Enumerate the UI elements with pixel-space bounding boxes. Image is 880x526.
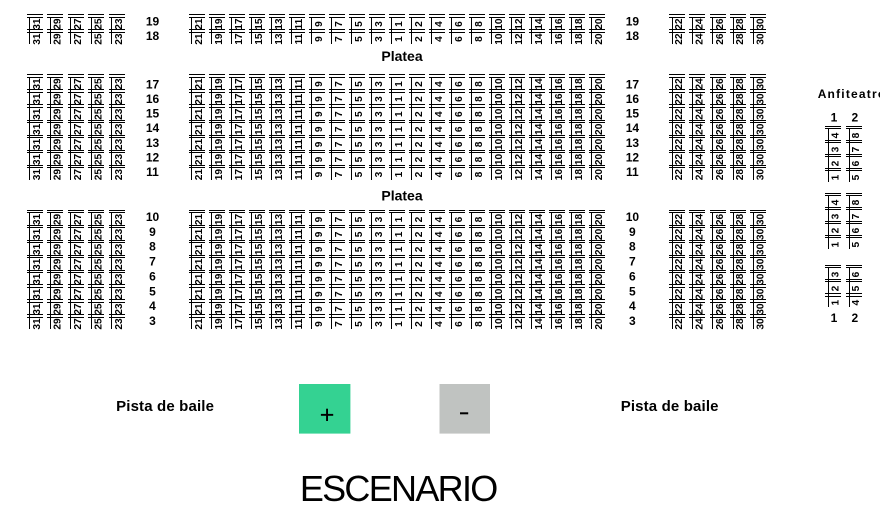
svg-text:6: 6 bbox=[454, 306, 465, 312]
svg-text:4: 4 bbox=[434, 246, 445, 252]
svg-text:23: 23 bbox=[114, 18, 125, 30]
svg-text:27: 27 bbox=[73, 243, 84, 255]
svg-text:6: 6 bbox=[629, 270, 636, 284]
svg-text:2: 2 bbox=[414, 216, 425, 222]
svg-text:18: 18 bbox=[146, 29, 160, 43]
svg-text:4: 4 bbox=[434, 171, 445, 177]
svg-text:18: 18 bbox=[626, 29, 640, 43]
svg-text:Anfiteatro: Anfiteatro bbox=[818, 87, 880, 101]
svg-text:21: 21 bbox=[194, 258, 205, 270]
svg-text:4: 4 bbox=[434, 276, 445, 282]
svg-text:11: 11 bbox=[294, 273, 305, 284]
svg-text:13: 13 bbox=[274, 93, 285, 105]
svg-text:2: 2 bbox=[414, 21, 425, 27]
svg-text:27: 27 bbox=[73, 214, 84, 226]
svg-text:13: 13 bbox=[274, 123, 285, 135]
svg-text:2: 2 bbox=[414, 36, 425, 42]
svg-text:20: 20 bbox=[594, 169, 605, 181]
svg-text:26: 26 bbox=[715, 214, 726, 226]
svg-text:12: 12 bbox=[514, 154, 525, 166]
svg-text:29: 29 bbox=[53, 123, 64, 135]
svg-text:3: 3 bbox=[374, 96, 385, 102]
svg-text:1: 1 bbox=[831, 311, 838, 325]
svg-text:10: 10 bbox=[494, 138, 505, 150]
svg-text:8: 8 bbox=[851, 132, 862, 138]
svg-text:15: 15 bbox=[254, 33, 265, 45]
svg-text:11: 11 bbox=[294, 229, 305, 240]
svg-text:16: 16 bbox=[554, 78, 565, 90]
svg-text:6: 6 bbox=[454, 216, 465, 222]
svg-text:19: 19 bbox=[214, 123, 225, 135]
svg-text:2: 2 bbox=[851, 110, 858, 124]
svg-text:20: 20 bbox=[594, 108, 605, 120]
svg-text:21: 21 bbox=[194, 303, 205, 315]
svg-text:15: 15 bbox=[254, 123, 265, 135]
svg-text:3: 3 bbox=[149, 314, 156, 328]
svg-text:1: 1 bbox=[394, 156, 405, 162]
svg-text:13: 13 bbox=[274, 169, 285, 181]
svg-text:19: 19 bbox=[214, 93, 225, 105]
svg-text:7: 7 bbox=[149, 255, 156, 269]
svg-text:4: 4 bbox=[434, 36, 445, 42]
svg-text:14: 14 bbox=[534, 93, 545, 105]
svg-text:9: 9 bbox=[314, 126, 325, 132]
svg-text:24: 24 bbox=[695, 303, 706, 315]
svg-text:30: 30 bbox=[756, 318, 767, 330]
svg-text:30: 30 bbox=[756, 138, 767, 150]
svg-text:26: 26 bbox=[715, 288, 726, 300]
svg-text:11: 11 bbox=[146, 165, 159, 179]
svg-text:31: 31 bbox=[32, 18, 43, 30]
svg-text:3: 3 bbox=[830, 213, 841, 219]
svg-text:18: 18 bbox=[574, 123, 585, 135]
svg-text:7: 7 bbox=[851, 213, 862, 219]
svg-text:19: 19 bbox=[214, 214, 225, 226]
svg-text:12: 12 bbox=[514, 108, 525, 120]
svg-text:1: 1 bbox=[394, 216, 405, 222]
svg-text:29: 29 bbox=[53, 18, 64, 30]
svg-text:22: 22 bbox=[674, 123, 685, 135]
svg-text:17: 17 bbox=[626, 78, 640, 92]
svg-text:21: 21 bbox=[194, 214, 205, 226]
svg-text:5: 5 bbox=[354, 21, 365, 27]
svg-text:14: 14 bbox=[534, 123, 545, 135]
svg-text:3: 3 bbox=[830, 271, 841, 277]
svg-text:14: 14 bbox=[534, 214, 545, 226]
svg-text:12: 12 bbox=[514, 258, 525, 270]
svg-text:28: 28 bbox=[735, 18, 746, 30]
svg-text:13: 13 bbox=[626, 136, 640, 150]
svg-text:2: 2 bbox=[414, 291, 425, 297]
svg-text:1: 1 bbox=[394, 246, 405, 252]
svg-text:Pista de baile: Pista de baile bbox=[621, 398, 719, 415]
svg-text:14: 14 bbox=[534, 288, 545, 300]
svg-text:2: 2 bbox=[414, 126, 425, 132]
svg-text:15: 15 bbox=[626, 107, 640, 121]
svg-text:16: 16 bbox=[554, 258, 565, 270]
svg-text:11: 11 bbox=[294, 288, 305, 299]
svg-text:16: 16 bbox=[554, 318, 565, 330]
svg-text:29: 29 bbox=[53, 303, 64, 315]
svg-text:28: 28 bbox=[735, 214, 746, 226]
svg-text:13: 13 bbox=[274, 258, 285, 270]
svg-text:5: 5 bbox=[354, 141, 365, 147]
svg-text:31: 31 bbox=[32, 214, 43, 226]
svg-text:2: 2 bbox=[830, 160, 841, 166]
svg-text:8: 8 bbox=[474, 81, 485, 87]
svg-text:19: 19 bbox=[214, 108, 225, 120]
svg-text:6: 6 bbox=[454, 126, 465, 132]
svg-text:1: 1 bbox=[394, 126, 405, 132]
svg-text:18: 18 bbox=[574, 108, 585, 120]
svg-text:17: 17 bbox=[146, 78, 160, 92]
svg-text:12: 12 bbox=[514, 123, 525, 135]
svg-text:8: 8 bbox=[474, 21, 485, 27]
svg-text:16: 16 bbox=[554, 123, 565, 135]
svg-text:24: 24 bbox=[695, 78, 706, 90]
svg-text:3: 3 bbox=[374, 231, 385, 237]
svg-text:19: 19 bbox=[214, 138, 225, 150]
svg-text:28: 28 bbox=[735, 33, 746, 45]
svg-text:7: 7 bbox=[334, 216, 345, 222]
svg-text:6: 6 bbox=[851, 271, 862, 277]
svg-text:14: 14 bbox=[534, 108, 545, 120]
svg-text:7: 7 bbox=[334, 231, 345, 237]
svg-text:1: 1 bbox=[394, 231, 405, 237]
svg-text:6: 6 bbox=[454, 276, 465, 282]
svg-text:5: 5 bbox=[354, 321, 365, 327]
svg-text:13: 13 bbox=[274, 214, 285, 226]
svg-text:4: 4 bbox=[434, 141, 445, 147]
svg-text:31: 31 bbox=[32, 78, 43, 90]
svg-text:28: 28 bbox=[735, 258, 746, 270]
svg-text:25: 25 bbox=[94, 18, 105, 30]
svg-text:2: 2 bbox=[851, 311, 858, 325]
svg-text:6: 6 bbox=[454, 171, 465, 177]
svg-text:28: 28 bbox=[735, 273, 746, 285]
svg-text:20: 20 bbox=[594, 318, 605, 330]
svg-text:31: 31 bbox=[32, 258, 43, 270]
svg-text:11: 11 bbox=[294, 33, 305, 44]
svg-text:3: 3 bbox=[374, 171, 385, 177]
svg-text:1: 1 bbox=[394, 261, 405, 267]
svg-text:28: 28 bbox=[735, 243, 746, 255]
svg-text:14: 14 bbox=[534, 258, 545, 270]
svg-text:5: 5 bbox=[354, 306, 365, 312]
svg-text:27: 27 bbox=[73, 273, 84, 285]
svg-text:10: 10 bbox=[146, 210, 160, 224]
svg-text:27: 27 bbox=[73, 78, 84, 90]
svg-text:16: 16 bbox=[554, 169, 565, 181]
svg-text:20: 20 bbox=[594, 154, 605, 166]
svg-text:22: 22 bbox=[674, 318, 685, 330]
svg-text:12: 12 bbox=[514, 93, 525, 105]
svg-text:26: 26 bbox=[715, 169, 726, 181]
svg-text:27: 27 bbox=[73, 93, 84, 105]
svg-text:7: 7 bbox=[334, 306, 345, 312]
svg-text:18: 18 bbox=[574, 78, 585, 90]
svg-text:27: 27 bbox=[73, 228, 84, 240]
svg-text:23: 23 bbox=[114, 93, 125, 105]
svg-text:31: 31 bbox=[32, 303, 43, 315]
svg-text:26: 26 bbox=[715, 93, 726, 105]
svg-text:28: 28 bbox=[735, 123, 746, 135]
svg-text:16: 16 bbox=[554, 138, 565, 150]
svg-text:25: 25 bbox=[94, 138, 105, 150]
svg-text:11: 11 bbox=[294, 303, 305, 314]
svg-text:7: 7 bbox=[334, 141, 345, 147]
svg-text:23: 23 bbox=[114, 258, 125, 270]
svg-text:14: 14 bbox=[534, 33, 545, 45]
svg-text:31: 31 bbox=[32, 288, 43, 300]
svg-text:8: 8 bbox=[474, 321, 485, 327]
svg-text:2: 2 bbox=[414, 246, 425, 252]
svg-text:13: 13 bbox=[274, 108, 285, 120]
svg-text:10: 10 bbox=[494, 108, 505, 120]
svg-text:14: 14 bbox=[534, 303, 545, 315]
svg-text:9: 9 bbox=[314, 231, 325, 237]
svg-text:15: 15 bbox=[254, 78, 265, 90]
svg-text:4: 4 bbox=[434, 321, 445, 327]
svg-text:21: 21 bbox=[194, 169, 205, 181]
svg-text:6: 6 bbox=[149, 270, 156, 284]
svg-text:17: 17 bbox=[234, 169, 245, 181]
svg-text:1: 1 bbox=[830, 300, 841, 306]
svg-text:19: 19 bbox=[214, 303, 225, 315]
svg-text:7: 7 bbox=[334, 321, 345, 327]
svg-text:12: 12 bbox=[514, 169, 525, 181]
svg-text:17: 17 bbox=[234, 258, 245, 270]
svg-text:31: 31 bbox=[32, 154, 43, 166]
svg-text:31: 31 bbox=[32, 318, 43, 330]
svg-text:4: 4 bbox=[434, 261, 445, 267]
svg-text:5: 5 bbox=[354, 291, 365, 297]
svg-text:22: 22 bbox=[674, 169, 685, 181]
svg-text:17: 17 bbox=[234, 273, 245, 285]
svg-text:19: 19 bbox=[214, 33, 225, 45]
svg-text:15: 15 bbox=[254, 258, 265, 270]
svg-text:21: 21 bbox=[194, 108, 205, 120]
svg-text:25: 25 bbox=[94, 258, 105, 270]
svg-text:16: 16 bbox=[554, 214, 565, 226]
svg-text:15: 15 bbox=[254, 169, 265, 181]
svg-text:25: 25 bbox=[94, 243, 105, 255]
svg-text:15: 15 bbox=[254, 138, 265, 150]
svg-text:19: 19 bbox=[214, 258, 225, 270]
svg-text:3: 3 bbox=[374, 36, 385, 42]
svg-text:15: 15 bbox=[254, 273, 265, 285]
svg-text:18: 18 bbox=[574, 318, 585, 330]
svg-text:29: 29 bbox=[53, 33, 64, 45]
svg-text:19: 19 bbox=[214, 318, 225, 330]
svg-text:11: 11 bbox=[294, 108, 305, 119]
svg-text:18: 18 bbox=[574, 18, 585, 30]
svg-text:27: 27 bbox=[73, 303, 84, 315]
svg-text:30: 30 bbox=[756, 33, 767, 45]
svg-text:16: 16 bbox=[554, 154, 565, 166]
svg-text:19: 19 bbox=[214, 228, 225, 240]
svg-text:29: 29 bbox=[53, 154, 64, 166]
svg-text:9: 9 bbox=[314, 96, 325, 102]
svg-text:16: 16 bbox=[626, 92, 640, 106]
svg-text:28: 28 bbox=[735, 288, 746, 300]
svg-text:18: 18 bbox=[574, 138, 585, 150]
svg-text:24: 24 bbox=[695, 123, 706, 135]
svg-text:8: 8 bbox=[149, 240, 156, 254]
svg-text:26: 26 bbox=[715, 18, 726, 30]
svg-text:24: 24 bbox=[695, 214, 706, 226]
svg-text:23: 23 bbox=[114, 78, 125, 90]
svg-text:14: 14 bbox=[146, 121, 160, 135]
svg-text:13: 13 bbox=[146, 136, 160, 150]
svg-text:2: 2 bbox=[414, 81, 425, 87]
svg-text:16: 16 bbox=[554, 243, 565, 255]
svg-text:2: 2 bbox=[414, 231, 425, 237]
svg-text:10: 10 bbox=[494, 93, 505, 105]
svg-text:21: 21 bbox=[194, 123, 205, 135]
svg-text:22: 22 bbox=[674, 33, 685, 45]
svg-text:2: 2 bbox=[414, 261, 425, 267]
svg-text:21: 21 bbox=[194, 154, 205, 166]
svg-text:13: 13 bbox=[274, 318, 285, 330]
svg-text:10: 10 bbox=[494, 33, 505, 45]
svg-text:8: 8 bbox=[474, 216, 485, 222]
svg-text:15: 15 bbox=[254, 108, 265, 120]
svg-text:11: 11 bbox=[294, 259, 305, 270]
svg-text:5: 5 bbox=[354, 36, 365, 42]
svg-text:25: 25 bbox=[94, 288, 105, 300]
svg-text:27: 27 bbox=[73, 108, 84, 120]
svg-text:16: 16 bbox=[554, 18, 565, 30]
svg-text:19: 19 bbox=[214, 18, 225, 30]
svg-text:5: 5 bbox=[149, 284, 156, 298]
svg-text:17: 17 bbox=[234, 18, 245, 30]
svg-text:4: 4 bbox=[434, 21, 445, 27]
svg-text:1: 1 bbox=[394, 36, 405, 42]
svg-text:16: 16 bbox=[554, 108, 565, 120]
svg-text:12: 12 bbox=[514, 78, 525, 90]
svg-text:8: 8 bbox=[474, 231, 485, 237]
svg-text:22: 22 bbox=[674, 154, 685, 166]
svg-text:12: 12 bbox=[514, 273, 525, 285]
svg-text:8: 8 bbox=[474, 111, 485, 117]
svg-text:18: 18 bbox=[574, 273, 585, 285]
svg-text:31: 31 bbox=[32, 273, 43, 285]
svg-text:1: 1 bbox=[831, 110, 838, 124]
svg-text:13: 13 bbox=[274, 138, 285, 150]
svg-text:9: 9 bbox=[314, 321, 325, 327]
svg-text:5: 5 bbox=[354, 126, 365, 132]
svg-text:30: 30 bbox=[756, 108, 767, 120]
svg-text:20: 20 bbox=[594, 214, 605, 226]
svg-text:21: 21 bbox=[194, 273, 205, 285]
svg-text:20: 20 bbox=[594, 78, 605, 90]
svg-text:13: 13 bbox=[274, 228, 285, 240]
svg-text:16: 16 bbox=[554, 228, 565, 240]
svg-text:7: 7 bbox=[334, 246, 345, 252]
svg-text:12: 12 bbox=[626, 150, 640, 164]
svg-text:4: 4 bbox=[434, 126, 445, 132]
svg-text:11: 11 bbox=[294, 169, 305, 180]
svg-text:30: 30 bbox=[756, 243, 767, 255]
svg-text:26: 26 bbox=[715, 78, 726, 90]
svg-text:31: 31 bbox=[32, 169, 43, 181]
svg-text:4: 4 bbox=[434, 111, 445, 117]
svg-text:20: 20 bbox=[594, 138, 605, 150]
svg-text:2: 2 bbox=[414, 276, 425, 282]
svg-text:8: 8 bbox=[474, 36, 485, 42]
svg-text:7: 7 bbox=[334, 21, 345, 27]
svg-text:3: 3 bbox=[374, 276, 385, 282]
svg-text:10: 10 bbox=[494, 123, 505, 135]
svg-text:13: 13 bbox=[274, 303, 285, 315]
svg-text:1: 1 bbox=[394, 291, 405, 297]
svg-text:12: 12 bbox=[514, 138, 525, 150]
svg-text:9: 9 bbox=[314, 306, 325, 312]
svg-text:17: 17 bbox=[234, 154, 245, 166]
svg-text:23: 23 bbox=[114, 288, 125, 300]
svg-text:30: 30 bbox=[756, 273, 767, 285]
svg-text:12: 12 bbox=[146, 150, 160, 164]
svg-text:15: 15 bbox=[254, 303, 265, 315]
svg-text:24: 24 bbox=[695, 288, 706, 300]
svg-text:26: 26 bbox=[715, 273, 726, 285]
svg-text:26: 26 bbox=[715, 123, 726, 135]
svg-text:22: 22 bbox=[674, 288, 685, 300]
svg-text:11: 11 bbox=[294, 139, 305, 150]
svg-text:25: 25 bbox=[94, 93, 105, 105]
svg-text:1: 1 bbox=[394, 141, 405, 147]
svg-text:7: 7 bbox=[629, 255, 636, 269]
svg-text:3: 3 bbox=[374, 141, 385, 147]
svg-text:19: 19 bbox=[214, 273, 225, 285]
svg-text:26: 26 bbox=[715, 108, 726, 120]
svg-text:16: 16 bbox=[554, 33, 565, 45]
svg-text:25: 25 bbox=[94, 318, 105, 330]
svg-text:3: 3 bbox=[374, 81, 385, 87]
svg-text:23: 23 bbox=[114, 123, 125, 135]
svg-text:26: 26 bbox=[715, 243, 726, 255]
svg-text:21: 21 bbox=[194, 93, 205, 105]
svg-text:22: 22 bbox=[674, 108, 685, 120]
svg-text:1: 1 bbox=[394, 321, 405, 327]
svg-text:31: 31 bbox=[32, 228, 43, 240]
svg-text:6: 6 bbox=[454, 141, 465, 147]
svg-text:5: 5 bbox=[354, 171, 365, 177]
svg-text:20: 20 bbox=[594, 123, 605, 135]
svg-text:20: 20 bbox=[594, 18, 605, 30]
svg-text:27: 27 bbox=[73, 138, 84, 150]
svg-text:10: 10 bbox=[494, 258, 505, 270]
svg-text:22: 22 bbox=[674, 78, 685, 90]
svg-text:30: 30 bbox=[756, 258, 767, 270]
svg-text:12: 12 bbox=[514, 214, 525, 226]
svg-text:2: 2 bbox=[830, 285, 841, 291]
svg-text:25: 25 bbox=[94, 214, 105, 226]
svg-text:14: 14 bbox=[534, 273, 545, 285]
svg-text:25: 25 bbox=[94, 303, 105, 315]
svg-text:1: 1 bbox=[394, 306, 405, 312]
svg-text:6: 6 bbox=[454, 246, 465, 252]
svg-text:5: 5 bbox=[354, 261, 365, 267]
svg-text:29: 29 bbox=[53, 243, 64, 255]
svg-text:29: 29 bbox=[53, 93, 64, 105]
svg-text:26: 26 bbox=[715, 303, 726, 315]
svg-text:30: 30 bbox=[756, 18, 767, 30]
svg-text:18: 18 bbox=[574, 169, 585, 181]
svg-text:9: 9 bbox=[314, 21, 325, 27]
svg-text:Pista de baile: Pista de baile bbox=[116, 398, 214, 415]
